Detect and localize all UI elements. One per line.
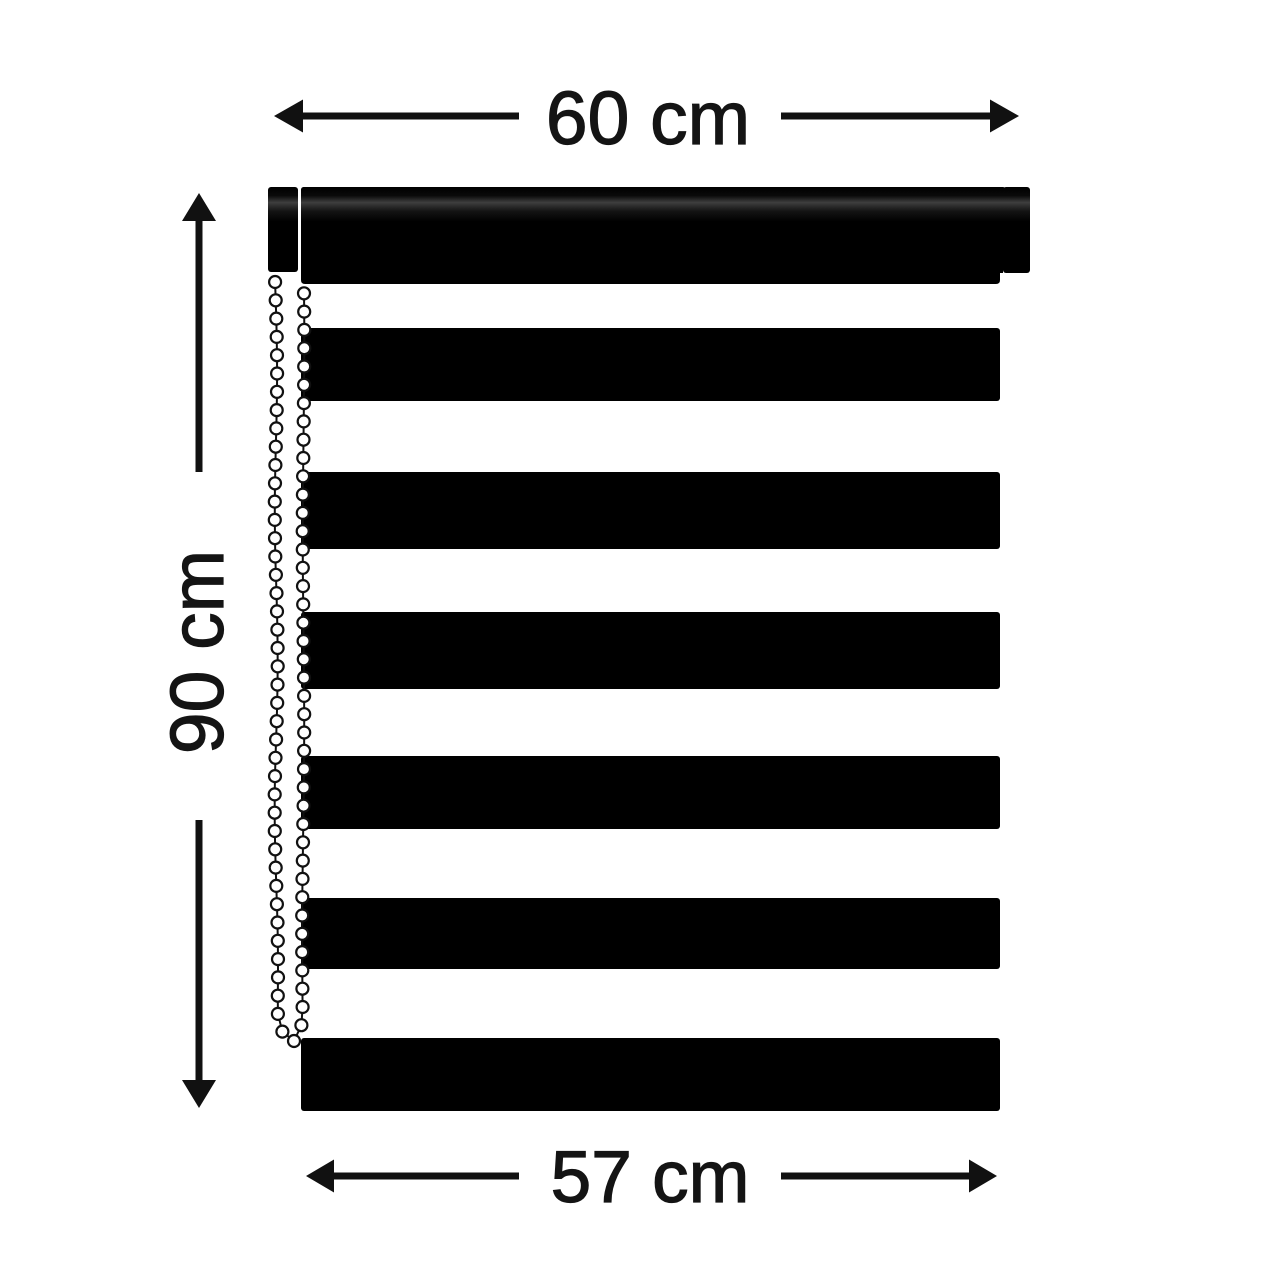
svg-text:90 cm: 90 cm xyxy=(155,550,239,754)
svg-text:57 cm: 57 cm xyxy=(551,1137,750,1218)
svg-text:60 cm: 60 cm xyxy=(546,76,750,160)
